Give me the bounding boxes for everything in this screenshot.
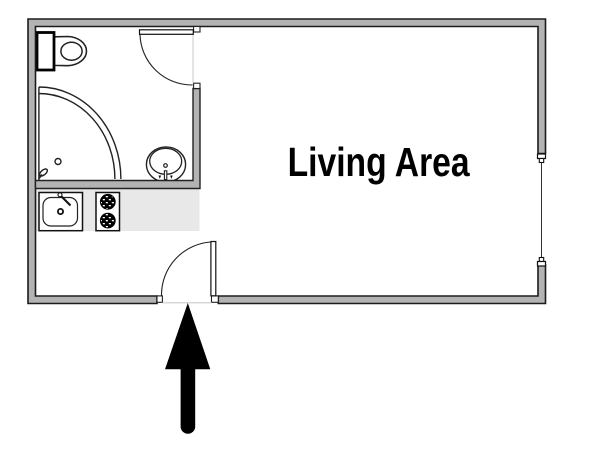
svg-text:Living Area: Living Area	[288, 139, 471, 185]
